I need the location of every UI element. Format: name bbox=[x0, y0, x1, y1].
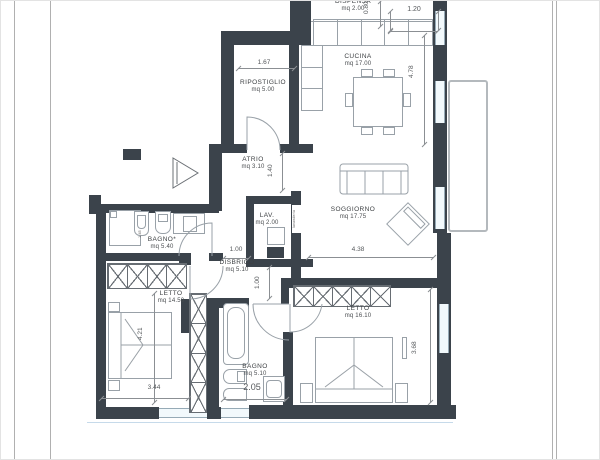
room-area: mq 17.75 bbox=[318, 214, 388, 221]
wall bbox=[249, 405, 456, 419]
room-name: LETTO bbox=[136, 290, 206, 298]
washing-machine bbox=[267, 247, 284, 258]
bathtub-basin bbox=[227, 307, 245, 359]
room-area: mq 5.00 bbox=[228, 87, 298, 94]
wardrobe bbox=[107, 263, 187, 289]
dimension-1-45: 1.45 bbox=[137, 226, 145, 242]
wall bbox=[281, 288, 289, 304]
room-name: SOGGIORNO bbox=[318, 206, 388, 214]
room-label-ripostiglio: RIPOSTIGLIO mq 5.00 bbox=[228, 79, 298, 94]
nightstand bbox=[108, 380, 120, 391]
dimension-line bbox=[308, 257, 434, 258]
dimension-1-40: 1.40 bbox=[267, 157, 279, 185]
dimension-line bbox=[380, 1, 381, 27]
faded-guide-line bbox=[87, 422, 453, 423]
wall bbox=[96, 407, 159, 419]
dimension-1-00-a: 1.00 bbox=[217, 246, 255, 253]
room-area: mq 5.10 bbox=[220, 371, 290, 378]
room-name: CUCINA bbox=[323, 53, 393, 61]
room-name: LETTO bbox=[323, 305, 393, 313]
room-label-bagno2: BAGNO mq 5.10 bbox=[220, 363, 290, 378]
dimension-2-05: 2.05 bbox=[234, 382, 270, 392]
dimension-4-38: 4.38 bbox=[343, 246, 373, 253]
dimension-3-44: 3.44 bbox=[137, 384, 171, 391]
sheet-frame-line bbox=[556, 1, 557, 460]
room-area: mq 2.00 bbox=[237, 220, 297, 227]
room-area: mq 5.40 bbox=[127, 244, 197, 251]
dimension-line bbox=[101, 398, 189, 399]
dispensa-divider-line bbox=[311, 21, 433, 22]
radiator bbox=[402, 337, 407, 359]
room-label-lav: LAV. mq 2.00 bbox=[237, 212, 297, 227]
room-area: mq 14.50 bbox=[136, 298, 206, 305]
room-label-letto2: LETTO mq 16.10 bbox=[323, 305, 393, 320]
room-label-cucina: CUCINA mq 17.00 bbox=[323, 53, 393, 68]
room-label-letto1: LETTO mq 14.50 bbox=[136, 290, 206, 305]
wall bbox=[207, 407, 221, 419]
chair bbox=[383, 127, 395, 135]
dimension-line bbox=[424, 35, 425, 145]
chair bbox=[345, 93, 353, 107]
washbasin bbox=[183, 216, 197, 232]
bed bbox=[315, 337, 393, 403]
wall bbox=[123, 149, 141, 160]
window bbox=[435, 81, 445, 123]
room-name: DISBRIGO bbox=[202, 259, 272, 267]
wall bbox=[96, 204, 106, 419]
dimension-line bbox=[269, 267, 270, 299]
room-name: RIPOSTIGLIO bbox=[228, 79, 298, 87]
nightstand bbox=[395, 383, 408, 403]
room-label-soggiorno: SOGGIORNO mq 17.75 bbox=[318, 206, 388, 221]
room-area: mq 16.10 bbox=[323, 313, 393, 320]
dimension-1-20: 1.20 bbox=[394, 6, 434, 13]
dimension-4-78: 4.78 bbox=[408, 57, 420, 87]
chair bbox=[403, 93, 411, 107]
kitchen-table bbox=[353, 77, 403, 127]
dimension-line bbox=[223, 258, 249, 259]
sheet-frame-line bbox=[50, 1, 51, 460]
wardrobe bbox=[293, 285, 391, 307]
dimension-1-00-b: 1.00 bbox=[254, 270, 265, 296]
nightstand bbox=[108, 302, 120, 312]
armchair bbox=[387, 203, 429, 245]
wardrobe bbox=[189, 293, 207, 413]
dimension-1-67: 1.67 bbox=[244, 59, 284, 66]
balcony bbox=[448, 80, 488, 232]
shower-drain bbox=[110, 211, 117, 218]
toilet-tank bbox=[158, 214, 168, 222]
door-arc-ripostiglio bbox=[247, 117, 280, 150]
dimension-3-68: 3.68 bbox=[411, 333, 423, 363]
dimension-line bbox=[223, 399, 287, 400]
room-name: BAGNO bbox=[220, 363, 290, 371]
room-area: mq 2.00 bbox=[318, 6, 388, 13]
wall bbox=[96, 253, 181, 261]
kitchen-counter bbox=[301, 45, 323, 111]
dimension-line bbox=[238, 68, 295, 69]
sofa bbox=[340, 164, 408, 194]
dimension-line bbox=[282, 153, 283, 191]
window bbox=[439, 304, 449, 353]
chair bbox=[361, 127, 373, 135]
sheet-frame-line bbox=[552, 1, 553, 460]
wall bbox=[207, 298, 219, 408]
dimension-line bbox=[430, 289, 431, 403]
nightstand bbox=[300, 383, 313, 403]
entrance-arrow bbox=[173, 158, 198, 188]
sheet-frame-line bbox=[14, 1, 15, 460]
chair bbox=[361, 69, 373, 77]
floor-plan-sheet: DISPENSA mq 2.00 CUCINA mq 17.00 RIPOSTI… bbox=[0, 0, 600, 460]
room-name: LAV. bbox=[237, 212, 297, 220]
extension-line bbox=[438, 11, 439, 31]
door-arc-letto2 bbox=[290, 304, 322, 332]
dimension-4-21: 4.21 bbox=[137, 319, 149, 349]
window bbox=[435, 187, 445, 229]
kitchen-counter bbox=[313, 19, 433, 46]
wall bbox=[209, 144, 222, 211]
laundry-sink bbox=[267, 227, 285, 245]
window bbox=[221, 408, 249, 418]
dimension-0-80: 0.80 bbox=[363, 0, 374, 18]
wall-note-lavanderia: lavanderia bbox=[292, 205, 301, 233]
dimension-line bbox=[390, 31, 438, 32]
room-area: mq 17.00 bbox=[323, 61, 393, 68]
wall bbox=[289, 41, 299, 153]
chair bbox=[383, 69, 395, 77]
extension-line bbox=[390, 11, 391, 31]
